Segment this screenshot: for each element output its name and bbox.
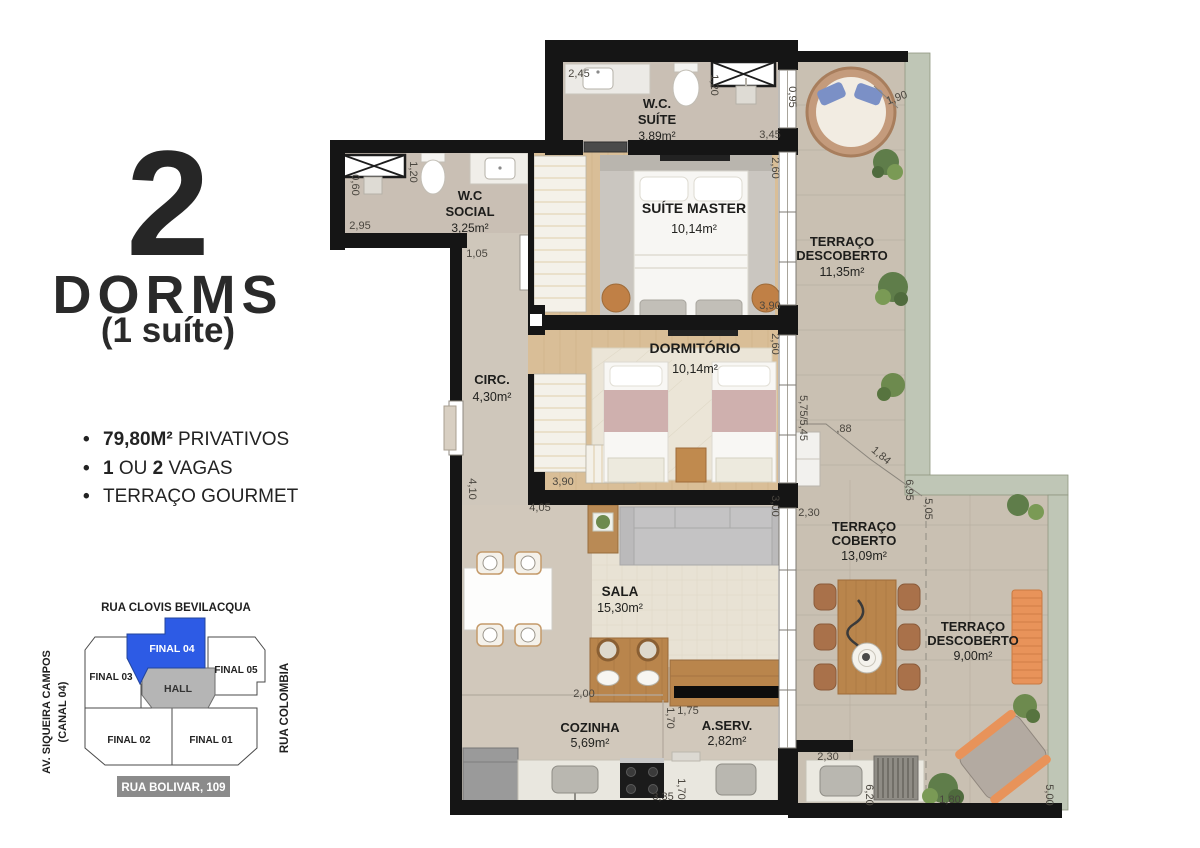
outdoor-dining-table [838, 580, 896, 694]
floor-plan-canvas: RUA CLOVIS BEVILACQUA AV. SIQUEIRA CAMPO… [0, 0, 1200, 848]
room-label: DESCOBERTO [927, 633, 1019, 648]
dimension: 3,90 [759, 300, 780, 312]
faucet [596, 70, 599, 73]
tv [674, 686, 782, 698]
faucet [498, 166, 501, 169]
fridge [463, 748, 518, 802]
dimension: 2,30 [798, 507, 819, 519]
floor-plan: W.C. SUÍTE 3,89m² W.C SOCIAL 3,25m² SUÍT… [330, 40, 1068, 818]
room-label: TERRAÇO [832, 519, 896, 534]
room-label: TERRAÇO [941, 619, 1005, 634]
bar-counter [590, 638, 668, 702]
single-bed-1 [604, 362, 668, 482]
room-label: W.C [458, 188, 483, 203]
unit-final-04-label: FINAL 04 [149, 643, 194, 655]
room-label: SUÍTE MASTER [642, 200, 746, 216]
room-label: SOCIAL [445, 204, 494, 219]
room-area: 5,69m² [571, 736, 610, 750]
dimension: 4,05 [529, 502, 550, 514]
dimension: 6,95 [903, 479, 915, 500]
dimension: 0,95 [786, 86, 798, 107]
tv-panel [660, 155, 730, 161]
street-left-label-2: (CANAL 04) [57, 681, 69, 742]
room-label: DESCOBERTO [796, 248, 888, 263]
pillow [694, 177, 742, 201]
site-plan: RUA CLOVIS BEVILACQUA AV. SIQUEIRA CAMPO… [41, 602, 291, 797]
street-left-label-1: AV. SIQUEIRA CAMPOS [41, 650, 53, 774]
street-right-label: RUA COLOMBIA [279, 663, 291, 753]
plate-decor [862, 653, 870, 661]
bbq-sink [820, 766, 862, 796]
round-daybed [807, 68, 895, 156]
dimension: 2,60 [769, 157, 781, 178]
street-top-label: RUA CLOVIS BEVILACQUA [101, 602, 251, 614]
dimension: 2,30 [817, 751, 838, 763]
dimension: 5,05 [922, 498, 934, 519]
dimension: 6,20 [863, 784, 875, 805]
tv-console [670, 660, 786, 706]
shower-box [712, 62, 775, 86]
dimension: 1,70 [664, 707, 676, 728]
unit-final-03-label: FINAL 03 [89, 672, 133, 683]
dimension: 0,60 [349, 174, 361, 195]
unit-final-02-label: FINAL 02 [107, 735, 151, 746]
room-area: 3,25m² [451, 221, 488, 235]
room-area: 11,35m² [820, 265, 865, 279]
bar-stool [638, 640, 658, 660]
entry-door [444, 401, 463, 455]
shower-head-icon [736, 86, 756, 104]
address-badge-label: RUA BOLIVAR, 109 [121, 782, 225, 794]
wc-social-door [520, 235, 529, 290]
room-area: 2,82m² [708, 734, 747, 748]
dining-table [464, 568, 552, 630]
dimension: 2,45 [568, 68, 589, 80]
room-area: 13,09m² [841, 549, 887, 563]
dimension: 3,90 [552, 476, 573, 488]
room-area: 15,30m² [597, 601, 643, 615]
dining-chair [515, 552, 541, 574]
room-area: 10,14m² [671, 222, 717, 236]
shower-head-icon [364, 177, 382, 194]
place-setting [637, 671, 659, 686]
room-label: DORMITÓRIO [650, 339, 741, 356]
door-pocket-slot [530, 314, 542, 326]
dining-chair [515, 624, 541, 646]
room-area: 10,14m² [672, 362, 718, 376]
place-setting [597, 671, 619, 686]
unit-final-05-label: FINAL 05 [214, 665, 258, 676]
room-area: 4,30m² [473, 390, 512, 404]
plant [596, 515, 610, 529]
shelf [672, 752, 700, 761]
toilet [673, 70, 699, 106]
bbq-grill [874, 756, 918, 800]
laundry-tank [716, 764, 756, 795]
dimension: 3,35 [652, 791, 673, 803]
room-label: W.C. [643, 96, 671, 111]
sofa [620, 507, 786, 565]
room-label: TERRAÇO [810, 234, 874, 249]
dimension: 3,00 [769, 495, 781, 516]
suite-sliding-door [584, 142, 627, 152]
dimension: 1,70 [675, 778, 687, 799]
dimension: 2,00 [573, 688, 594, 700]
room-area: 3,89m² [638, 129, 675, 143]
suite-wardrobe [534, 156, 586, 312]
room-label: COBERTO [832, 533, 897, 548]
unit-hall-label: HALL [164, 683, 193, 695]
dimension: 1,80 [939, 794, 960, 806]
room-label: CIRC. [474, 372, 509, 387]
dining-chair [477, 624, 503, 646]
nightstand [676, 448, 706, 482]
dimension: 5,00 [1043, 784, 1055, 805]
dimension: 1,20 [407, 161, 419, 182]
dimension: 2,60 [769, 333, 781, 354]
single-bed-2 [712, 362, 776, 482]
bar-stool [598, 640, 618, 660]
dimension: 1,20 [708, 74, 720, 95]
dimension: ,88 [836, 423, 851, 435]
plant-shelf [588, 505, 618, 553]
unit-final-01-label: FINAL 01 [189, 735, 233, 746]
dimension: 4,10 [466, 478, 478, 499]
dimension: 5,75/5,45 [797, 395, 809, 441]
dimension: 2,95 [349, 220, 370, 232]
dimension: 3,45 [759, 129, 780, 141]
room-label: SALA [602, 584, 639, 599]
round-nightstand [602, 284, 630, 312]
tv-panel [668, 330, 738, 336]
dining-chair [477, 552, 503, 574]
toilet [421, 160, 445, 194]
pillow [640, 177, 688, 201]
room-label: COZINHA [560, 720, 620, 735]
kitchen-sink [552, 766, 598, 793]
dimension: 1,75 [677, 705, 698, 717]
dimension: 1,05 [466, 248, 487, 260]
room-label: A.SERV. [702, 718, 753, 733]
room-area: 9,00m² [954, 649, 993, 663]
circ-floor [462, 233, 528, 505]
room-label: SUÍTE [638, 112, 677, 127]
